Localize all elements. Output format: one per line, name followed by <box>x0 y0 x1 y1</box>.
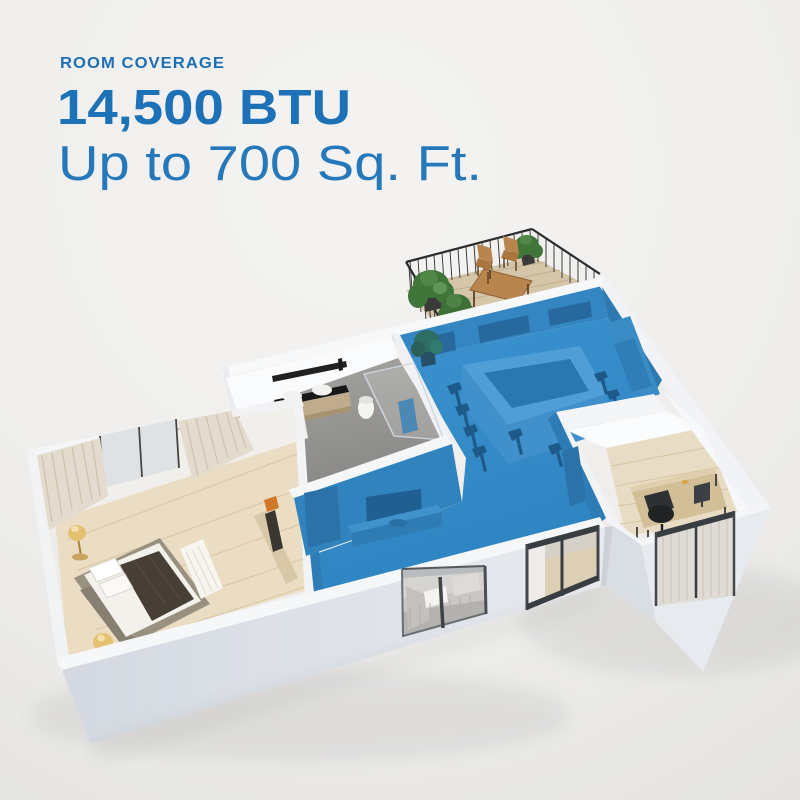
svg-text:14,500 BTU: 14,500 BTU <box>57 81 351 135</box>
svg-text:Up to 700 Sq. Ft.: Up to 700 Sq. Ft. <box>58 137 482 191</box>
svg-text:ROOM COVERAGE: ROOM COVERAGE <box>60 55 225 72</box>
